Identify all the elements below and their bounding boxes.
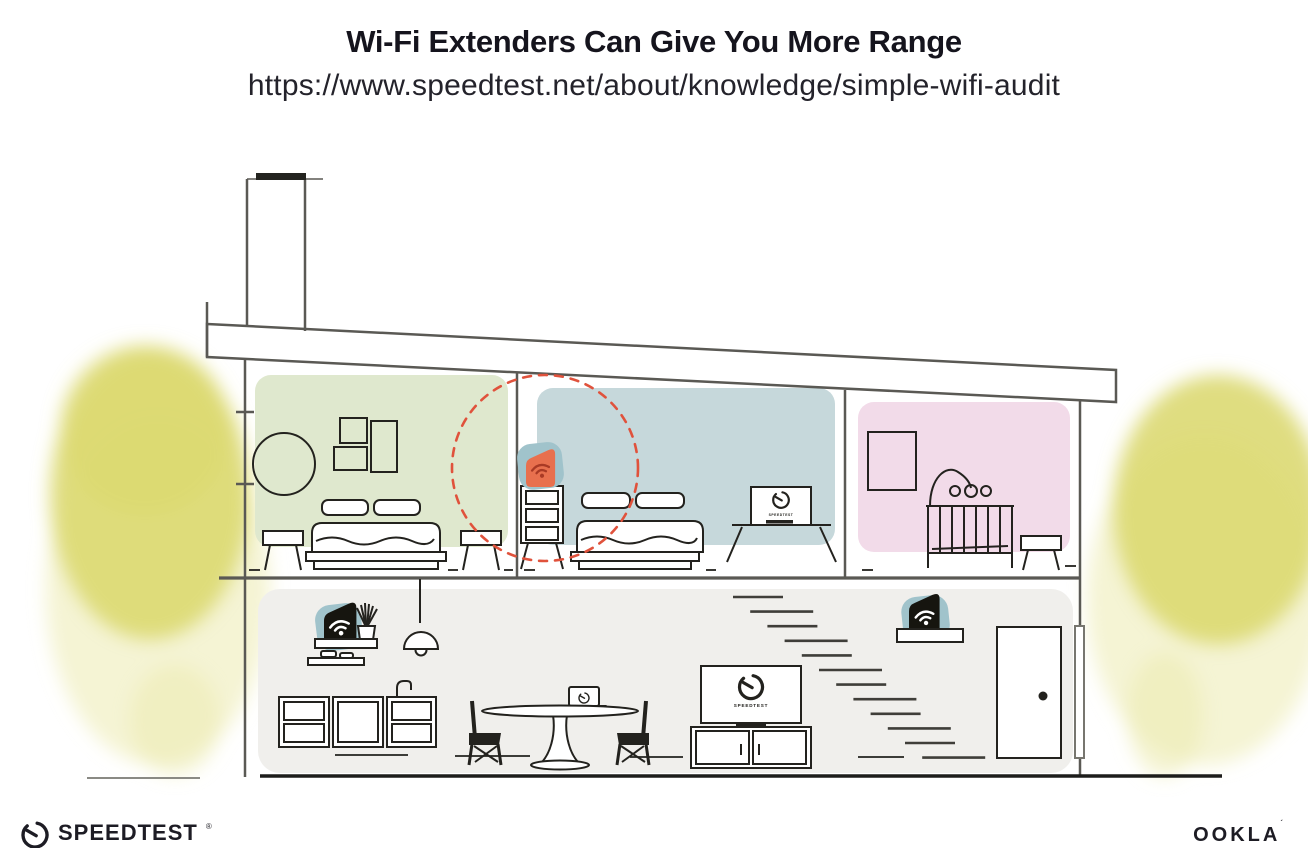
wifi-extender-upstairs xyxy=(516,441,566,491)
double-bed xyxy=(571,493,703,569)
speedtest-gauge-icon xyxy=(20,818,50,848)
door-knob xyxy=(1039,692,1048,701)
door-frame-strip xyxy=(1075,626,1084,758)
stool xyxy=(1021,536,1061,570)
chimney-cap xyxy=(256,173,306,180)
svg-text:SPEEDTEST: SPEEDTEST xyxy=(769,513,794,517)
tree-left xyxy=(46,345,270,775)
media-console xyxy=(691,727,811,768)
tree-right xyxy=(1087,375,1308,777)
tv-and-console: SPEEDTEST xyxy=(691,666,811,768)
ookla-trademark: ´ xyxy=(1280,819,1286,828)
chimney xyxy=(247,173,323,331)
page-title: Wi-Fi Extenders Can Give You More Range xyxy=(0,24,1308,60)
wall-shelf-upper xyxy=(315,639,377,648)
tv-screen xyxy=(701,666,801,723)
nightstand xyxy=(263,531,303,570)
footer: SPEEDTEST® OOKLA´ xyxy=(0,814,1308,861)
speedtest-trademark: ® xyxy=(206,822,212,831)
svg-text:SPEEDTEST: SPEEDTEST xyxy=(734,703,769,708)
header: Wi-Fi Extenders Can Give You More Range … xyxy=(0,24,1308,103)
ookla-logo: OOKLA´ xyxy=(1193,824,1286,847)
house-illustration: SPEEDTEST xyxy=(0,0,1308,861)
front-door xyxy=(997,627,1061,758)
tv-screen xyxy=(751,487,811,525)
source-url: https://www.speedtest.net/about/knowledg… xyxy=(0,69,1308,103)
infographic-page: Wi-Fi Extenders Can Give You More Range … xyxy=(0,0,1308,861)
extender-shelf xyxy=(897,629,963,642)
floor-dashes xyxy=(862,566,1076,570)
speedtest-wordmark: SPEEDTEST xyxy=(58,820,198,846)
speedtest-logo: SPEEDTEST® xyxy=(20,818,212,848)
dresser xyxy=(521,486,563,569)
room-fill-green-bedroom xyxy=(255,375,508,547)
ookla-wordmark: OOKLA xyxy=(1193,824,1280,846)
